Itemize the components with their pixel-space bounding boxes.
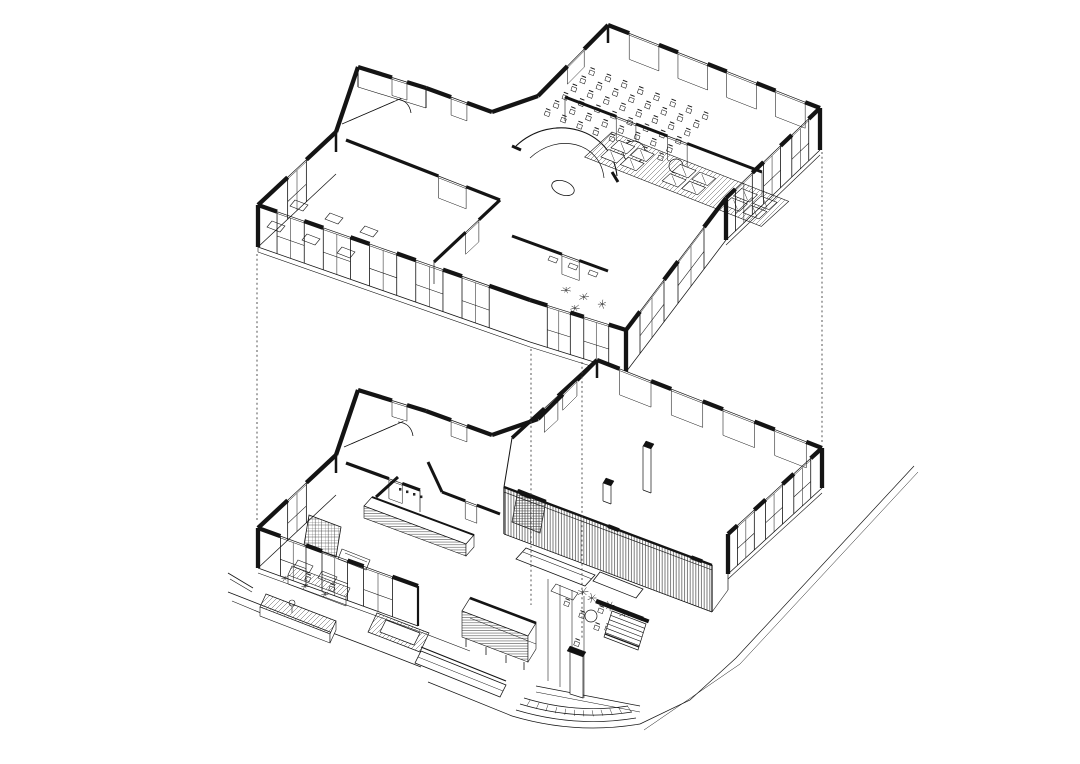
- drawing-canvas: Exploded axonometric drawing of a two-st…: [0, 0, 1080, 764]
- long-planter: [260, 594, 336, 643]
- bar-counter: [462, 598, 536, 670]
- window-planter-bay: [288, 566, 350, 606]
- upper-floor-plan: [258, 25, 820, 377]
- axonometric-drawing: Exploded axonometric drawing of a two-st…: [0, 0, 1080, 764]
- ramp: [415, 647, 506, 697]
- lower-floor-slab: [258, 360, 822, 612]
- upper-floor-slab: [258, 25, 820, 330]
- lower-floor-plan: [228, 360, 918, 730]
